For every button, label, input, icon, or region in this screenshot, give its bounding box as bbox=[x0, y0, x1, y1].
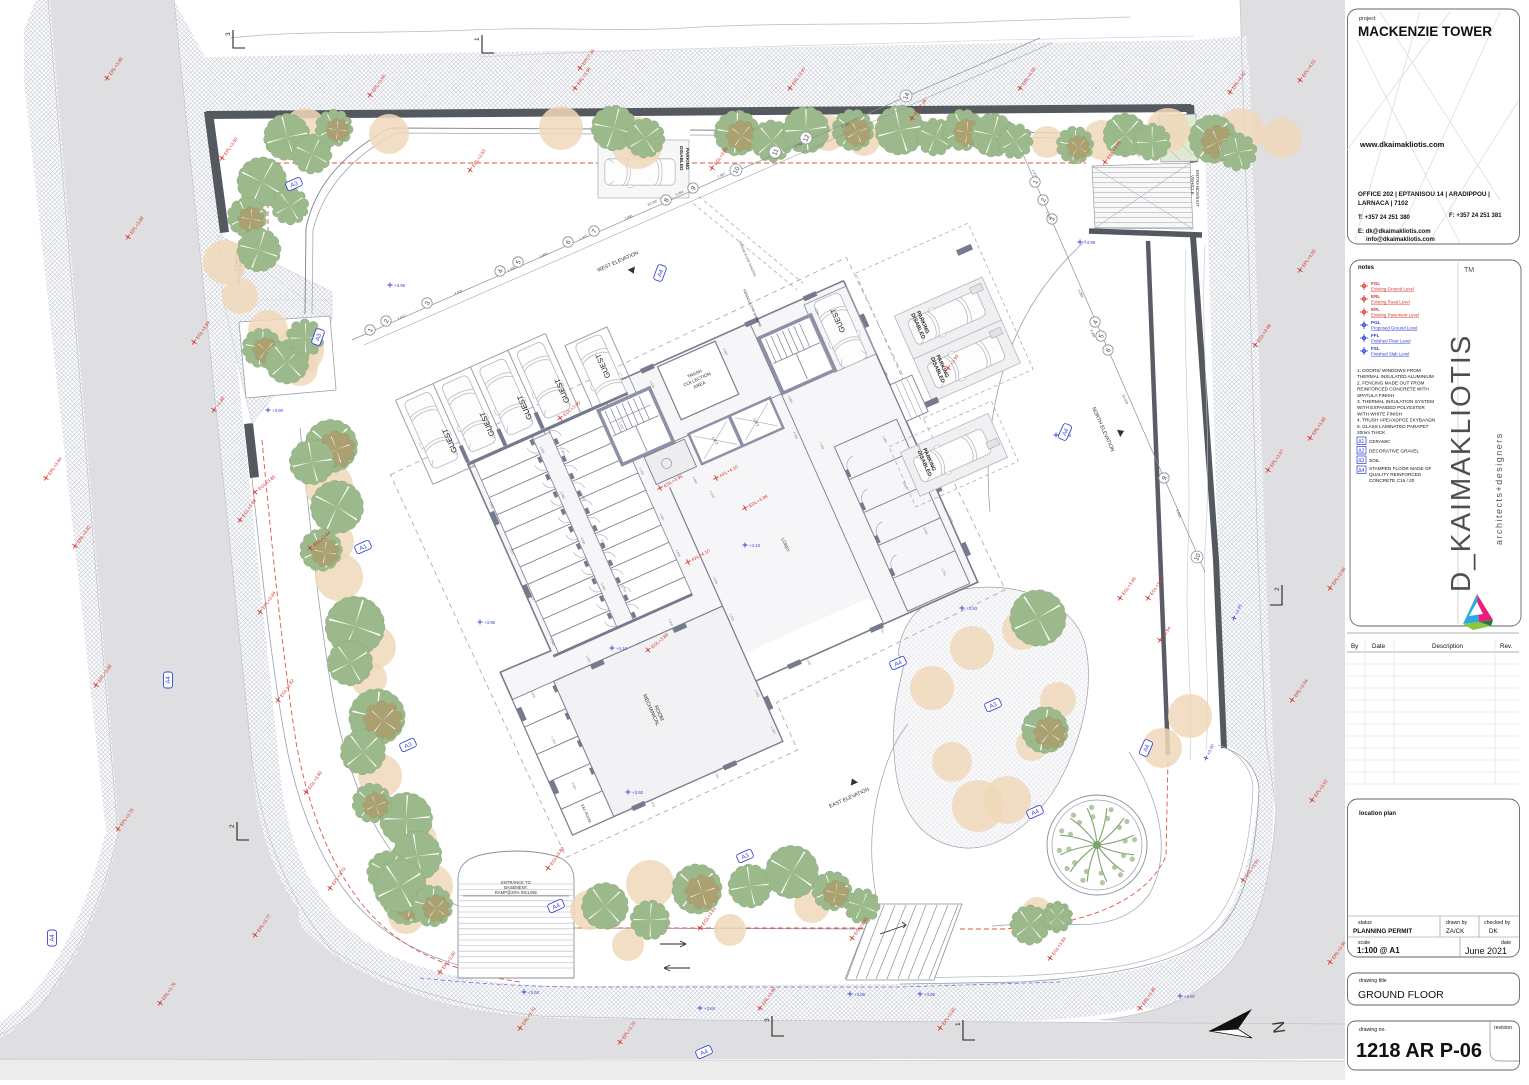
svg-text:DISABLED: DISABLED bbox=[678, 146, 684, 171]
svg-text:+3.90: +3.90 bbox=[272, 408, 284, 413]
svg-text:VEHICLE: VEHICLE bbox=[1190, 175, 1195, 195]
svg-text:+3.84: +3.84 bbox=[704, 1006, 716, 1011]
svg-text:ENTRANCE/EXIT: ENTRANCE/EXIT bbox=[1195, 170, 1200, 207]
svg-text:D_KAIMAKLIOTIS: D_KAIMAKLIOTIS bbox=[1445, 334, 1476, 592]
svg-text:notes: notes bbox=[1358, 265, 1375, 271]
svg-text:Δ1: Δ1 bbox=[1358, 439, 1364, 445]
svg-text:revision: revision bbox=[1494, 1025, 1512, 1031]
svg-text:3: 3 bbox=[764, 1018, 771, 1022]
svg-text:Proposed Ground Level: Proposed Ground Level bbox=[1371, 326, 1417, 331]
svg-text:By: By bbox=[1351, 643, 1359, 650]
svg-text:FFL: FFL bbox=[1371, 333, 1380, 338]
svg-text:1. DOORS/ WINDOWS FROM: 1. DOORS/ WINDOWS FROM bbox=[1357, 368, 1421, 373]
svg-text:3: 3 bbox=[225, 32, 232, 36]
svg-text:location plan: location plan bbox=[1359, 811, 1396, 817]
svg-text:CERAMIC: CERAMIC bbox=[1369, 439, 1391, 444]
svg-text:+3.99: +3.99 bbox=[1084, 240, 1096, 245]
svg-text:+4.10: +4.10 bbox=[749, 543, 761, 548]
svg-text:A4: A4 bbox=[166, 676, 172, 684]
svg-text:LARNACA | 7102: LARNACA | 7102 bbox=[1358, 200, 1409, 207]
svg-text:F: +357 24 251 381: F: +357 24 251 381 bbox=[1449, 213, 1502, 219]
svg-text:2. FENCING MADE OUT FROM: 2. FENCING MADE OUT FROM bbox=[1357, 380, 1424, 385]
svg-text:Finished Floor Level: Finished Floor Level bbox=[1371, 339, 1411, 344]
svg-text:2: 2 bbox=[1274, 587, 1281, 591]
svg-text:TM: TM bbox=[1464, 267, 1474, 274]
svg-text:A4: A4 bbox=[50, 934, 56, 942]
svg-text:REINFORCED CONCRETE WITH: REINFORCED CONCRETE WITH bbox=[1357, 387, 1429, 392]
svg-text:PLANNING PERMIT: PLANNING PERMIT bbox=[1353, 928, 1412, 935]
svg-text:WITH EXPANDED POLYESTER: WITH EXPANDED POLYESTER bbox=[1357, 405, 1425, 410]
svg-text:+3.93: +3.93 bbox=[966, 606, 978, 611]
svg-text:+3.86: +3.86 bbox=[854, 992, 866, 997]
svg-text:N: N bbox=[1268, 1020, 1289, 1035]
svg-text:3. THERMAL INSULATION SYSTEM: 3. THERMAL INSULATION SYSTEM bbox=[1357, 399, 1434, 404]
svg-text:DECORATIVE GRAVEL: DECORATIVE GRAVEL bbox=[1369, 449, 1419, 454]
svg-text:checked by: checked by bbox=[1484, 920, 1511, 926]
svg-text:June 2021: June 2021 bbox=[1465, 946, 1507, 956]
svg-text:PGL: PGL bbox=[1371, 320, 1381, 325]
svg-text:4. TRUSH ΑΡΕΑΧΩΡΟΣ ΣΚΥΒΑΛΩΝ: 4. TRUSH ΑΡΕΑΧΩΡΟΣ ΣΚΥΒΑΛΩΝ bbox=[1357, 418, 1435, 423]
svg-text:1:100 @ A1: 1:100 @ A1 bbox=[1357, 946, 1400, 955]
svg-text:Existing Ground Level: Existing Ground Level bbox=[1371, 287, 1414, 292]
svg-text:OFFICE 202 | EPTANISOU 14 | AR: OFFICE 202 | EPTANISOU 14 | ARADIPPOU | bbox=[1358, 191, 1490, 198]
svg-text:+3.95: +3.95 bbox=[394, 283, 406, 288]
svg-text:ZA/CK: ZA/CK bbox=[1446, 928, 1465, 935]
svg-text:+4.10: +4.10 bbox=[616, 646, 628, 651]
svg-text:architects+designers: architects+designers bbox=[1494, 432, 1504, 545]
svg-text:FGL: FGL bbox=[1371, 281, 1380, 286]
svg-text:QUALITY REINFORCED: QUALITY REINFORCED bbox=[1369, 472, 1422, 477]
svg-text:Existing Road Level: Existing Road Level bbox=[1371, 300, 1410, 305]
svg-text:+3.84: +3.84 bbox=[528, 990, 540, 995]
svg-text:GROUND FLOOR: GROUND FLOOR bbox=[1358, 989, 1444, 1001]
svg-text:www.dkaimakliotis.com: www.dkaimakliotis.com bbox=[1359, 140, 1445, 149]
svg-text:drawing no.: drawing no. bbox=[1359, 1027, 1386, 1033]
svg-text:+3.95: +3.95 bbox=[484, 620, 496, 625]
svg-text:Finished Slab Level: Finished Slab Level bbox=[1371, 352, 1409, 357]
svg-text:Δ4: Δ4 bbox=[1358, 468, 1364, 474]
svg-text:1218 AR P-06: 1218 AR P-06 bbox=[1356, 1040, 1482, 1062]
svg-text:drawing title: drawing title bbox=[1359, 978, 1387, 984]
svg-text:THERMAL INSULATED ALUMINIUM: THERMAL INSULATED ALUMINIUM bbox=[1357, 374, 1434, 379]
svg-text:PARKING: PARKING bbox=[684, 148, 690, 170]
svg-text:project: project bbox=[1359, 16, 1376, 22]
svg-text:Δ3: Δ3 bbox=[1358, 458, 1364, 464]
svg-text:STAMPED FLOOR MADE OF: STAMPED FLOOR MADE OF bbox=[1369, 466, 1432, 471]
svg-text:Existing Pavement Level: Existing Pavement Level bbox=[1371, 313, 1419, 318]
svg-text:Rev.: Rev. bbox=[1500, 643, 1513, 650]
svg-text:SPATULA FINISH: SPATULA FINISH bbox=[1357, 393, 1394, 398]
svg-text:MACKENZIE TOWER: MACKENZIE TOWER bbox=[1358, 24, 1492, 39]
svg-text:WITH WHITE FINISH: WITH WHITE FINISH bbox=[1357, 411, 1402, 416]
svg-text:T: +357 24 251 380: T: +357 24 251 380 bbox=[1358, 215, 1411, 221]
svg-text:2: 2 bbox=[229, 824, 236, 828]
svg-text:Date: Date bbox=[1372, 643, 1386, 650]
svg-text:1: 1 bbox=[474, 37, 481, 41]
svg-text:1: 1 bbox=[955, 1022, 962, 1026]
svg-text:Description: Description bbox=[1432, 643, 1464, 650]
svg-text:info@dkaimakliotis.com: info@dkaimakliotis.com bbox=[1366, 237, 1435, 243]
svg-text:drawn by: drawn by bbox=[1446, 920, 1467, 926]
svg-text:Δ2: Δ2 bbox=[1358, 449, 1364, 455]
svg-text:+3.87: +3.87 bbox=[1184, 994, 1196, 999]
svg-text:DK: DK bbox=[1489, 928, 1498, 935]
svg-text:E: dk@dkaimakliotis.com: E: dk@dkaimakliotis.com bbox=[1358, 229, 1431, 235]
svg-text:EPL: EPL bbox=[1371, 307, 1380, 312]
svg-text:+3.85: +3.85 bbox=[924, 992, 936, 997]
svg-text:FSL: FSL bbox=[1371, 346, 1380, 351]
svg-text:status: status bbox=[1358, 920, 1372, 926]
svg-text:5. GLASS LAMINATED PARAPET: 5. GLASS LAMINATED PARAPET bbox=[1357, 424, 1429, 429]
svg-text:20mm THICK: 20mm THICK bbox=[1357, 430, 1386, 435]
svg-text:RAMP@20% INCLINE: RAMP@20% INCLINE bbox=[495, 890, 538, 895]
svg-text:ERL: ERL bbox=[1371, 294, 1380, 299]
svg-text:SOIL: SOIL bbox=[1369, 458, 1380, 463]
svg-text:CONCRETE C16 / 20: CONCRETE C16 / 20 bbox=[1369, 478, 1415, 483]
svg-text:+3.92: +3.92 bbox=[632, 790, 644, 795]
